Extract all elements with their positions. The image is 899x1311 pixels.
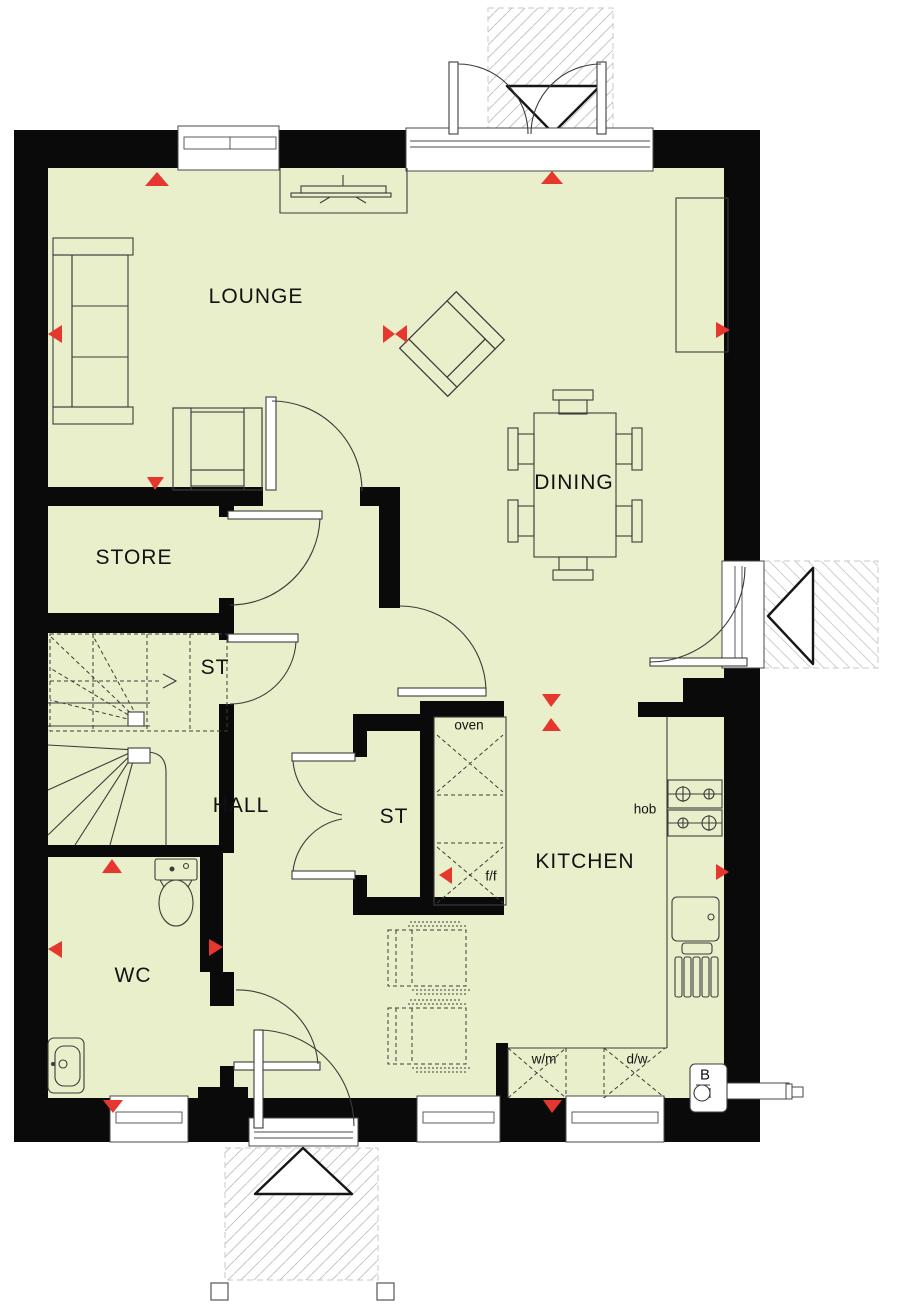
understair-door-leaf <box>228 634 298 642</box>
room-label-wc: WC <box>115 964 152 988</box>
hall-kitchen-door-leaf <box>398 688 486 696</box>
fixture-label-washing-machine: w/m <box>532 1052 557 1067</box>
floor-plan: LOUNGE DINING STORE ST HALL ST KITCHEN W… <box>0 0 899 1311</box>
french-doors-opening <box>406 128 653 171</box>
room-label-lounge: LOUNGE <box>209 285 304 309</box>
stair-newel-post <box>128 712 144 726</box>
side-door-leaf <box>650 658 747 666</box>
porch-post-right <box>377 1283 394 1300</box>
floor-plan-drawing <box>0 0 899 1311</box>
room-label-dining: DINING <box>534 471 614 495</box>
side-door-opening <box>722 561 764 668</box>
window-hall <box>417 1096 500 1142</box>
window-kitchen <box>566 1096 664 1142</box>
store-door-leaf <box>228 511 322 519</box>
room-label-store: STORE <box>96 546 173 570</box>
fixture-label-fridge-freezer: f/f <box>485 869 496 884</box>
french-door-right-leaf <box>597 62 606 134</box>
lounge-door-leaf <box>266 397 276 490</box>
window-wc <box>110 1096 188 1142</box>
room-label-hall-store: ST <box>380 805 409 829</box>
porch-post-left <box>211 1283 228 1300</box>
room-label-hall: HALL <box>213 794 270 818</box>
fixture-label-dishwasher: d/w <box>626 1052 647 1067</box>
boiler-flue <box>727 1083 789 1099</box>
french-door-left-leaf <box>449 62 458 134</box>
wc-door-leaf <box>234 1062 320 1070</box>
fixture-label-oven: oven <box>454 718 483 733</box>
room-label-stairs-store: ST <box>201 656 230 680</box>
window-lounge <box>178 126 279 170</box>
front-door-leaf <box>254 1030 263 1128</box>
hall-store-door-bottom-leaf <box>292 871 355 879</box>
room-label-kitchen: KITCHEN <box>535 850 634 874</box>
hall-store-door-top-leaf <box>292 753 355 761</box>
fixture-label-boiler: B <box>700 1067 710 1084</box>
stair-newel-post <box>128 748 150 763</box>
fixture-label-hob: hob <box>634 802 657 817</box>
